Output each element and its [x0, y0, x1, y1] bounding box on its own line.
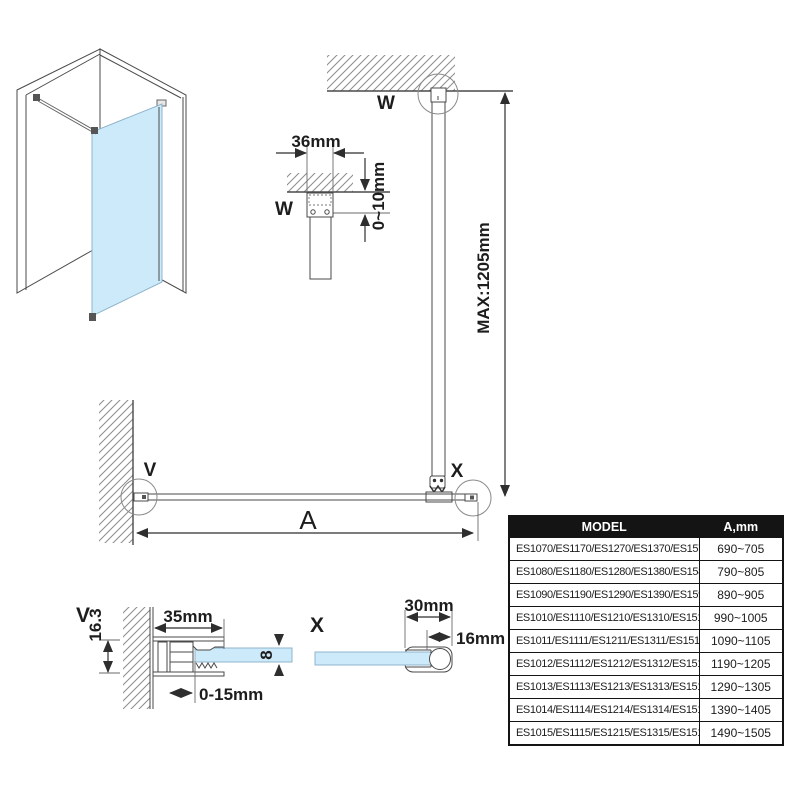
profile-top-flange	[153, 637, 224, 641]
ceiling-hatch-small	[287, 173, 353, 192]
a-column-header: A,mm	[699, 516, 783, 538]
model-column-header: MODEL	[509, 516, 699, 538]
table-row: ES1010/ES1110/ES1210/ES1310/ES1510 990~1…	[509, 607, 783, 630]
wall-hatch-detail	[123, 607, 150, 709]
label-w-detail: W	[275, 199, 293, 220]
detail-x-view: X 30mm 16mm	[310, 596, 505, 672]
technical-sheet: 36mm 0~10mm W W MAX:1205mm V	[0, 0, 800, 800]
glass-edge-x	[315, 652, 431, 665]
label-v-main: V	[144, 460, 157, 481]
dim-a: A	[299, 505, 317, 535]
a-value-cell: 790~805	[699, 561, 783, 584]
model-cell: ES1014/ES1114/ES1214/ES1314/ES1514	[509, 699, 699, 722]
elevation-view: W MAX:1205mm	[327, 55, 513, 502]
ceiling-hatch	[327, 55, 455, 91]
dim-max-1205mm: MAX:1205mm	[474, 222, 493, 334]
dim-0-10mm: 0~10mm	[369, 162, 388, 231]
table-row: ES1090/ES1190/ES1290/ES1390/ES1590 890~9…	[509, 584, 783, 607]
dim-16-3: 16.3	[86, 608, 105, 641]
table-row: ES1014/ES1114/ES1214/ES1314/ES1514 1390~…	[509, 699, 783, 722]
dim-0-15mm: 0-15mm	[199, 685, 263, 704]
label-w-main: W	[377, 93, 395, 114]
bar-glass-clamp	[91, 127, 98, 134]
label-x-main: X	[451, 461, 464, 482]
left-wall	[17, 49, 100, 293]
table-row: ES1015/ES1115/ES1215/ES1315/ES1515 1490~…	[509, 722, 783, 746]
dim-8: 8	[257, 650, 276, 659]
a-value-cell: 1190~1205	[699, 653, 783, 676]
model-cell: ES1010/ES1110/ES1210/ES1310/ES1510	[509, 607, 699, 630]
dim-35mm: 35mm	[163, 607, 212, 626]
glass-panel	[92, 104, 162, 316]
detail-w-view: 36mm 0~10mm W	[275, 132, 390, 279]
table-row: ES1070/ES1170/ES1270/ES1370/ES1570 690~7…	[509, 538, 783, 561]
table-row: ES1080/ES1180/ES1280/ES1380/ES1580 790~8…	[509, 561, 783, 584]
support-bar-elevation	[432, 91, 445, 476]
models-table: MODEL A,mm ES1070/ES1170/ES1270/ES1370/E…	[508, 515, 784, 746]
a-value-cell: 890~905	[699, 584, 783, 607]
bar-wall-clamp	[33, 94, 40, 101]
glass-foot	[89, 313, 96, 321]
wall-hatch	[99, 400, 133, 543]
dim-16mm: 16mm	[456, 629, 505, 648]
dim-36mm: 36mm	[291, 132, 340, 151]
bar-top-section	[310, 217, 331, 279]
model-cell: ES1015/ES1115/ES1215/ES1315/ES1515	[509, 722, 699, 746]
wall-profile-body	[170, 642, 193, 672]
label-x-detail: X	[310, 614, 324, 637]
a-value-cell: 690~705	[699, 538, 783, 561]
a-value-cell: 1490~1505	[699, 722, 783, 746]
a-value-cell: 1090~1105	[699, 630, 783, 653]
table-row: ES1011/ES1111/ES1211/ES1311/ES1511 1090~…	[509, 630, 783, 653]
detail-v-view: V 16.3 35mm 0-15mm 8	[76, 604, 292, 709]
model-cell: ES1011/ES1111/ES1211/ES1311/ES1511	[509, 630, 699, 653]
a-value-cell: 990~1005	[699, 607, 783, 630]
table-header-row: MODEL A,mm	[509, 516, 783, 538]
a-value-cell: 1390~1405	[699, 699, 783, 722]
model-cell: ES1013/ES1113/ES1213/ES1313/ES1513	[509, 676, 699, 699]
bar-socket	[430, 649, 451, 670]
isometric-sketch	[17, 49, 186, 321]
model-cell: ES1070/ES1170/ES1270/ES1370/ES1570	[509, 538, 699, 561]
model-cell: ES1012/ES1112/ES1212/ES1312/ES1512	[509, 653, 699, 676]
model-cell: ES1080/ES1180/ES1280/ES1380/ES1580	[509, 561, 699, 584]
table-row: ES1012/ES1112/ES1212/ES1312/ES1512 1190~…	[509, 653, 783, 676]
model-cell: ES1090/ES1190/ES1290/ES1390/ES1590	[509, 584, 699, 607]
dim-30mm: 30mm	[404, 596, 453, 615]
a-value-cell: 1290~1305	[699, 676, 783, 699]
table-row: ES1013/ES1113/ES1213/ES1313/ES1513 1290~…	[509, 676, 783, 699]
profile-bottom-flange	[153, 672, 224, 676]
profile-gasket	[196, 663, 217, 668]
